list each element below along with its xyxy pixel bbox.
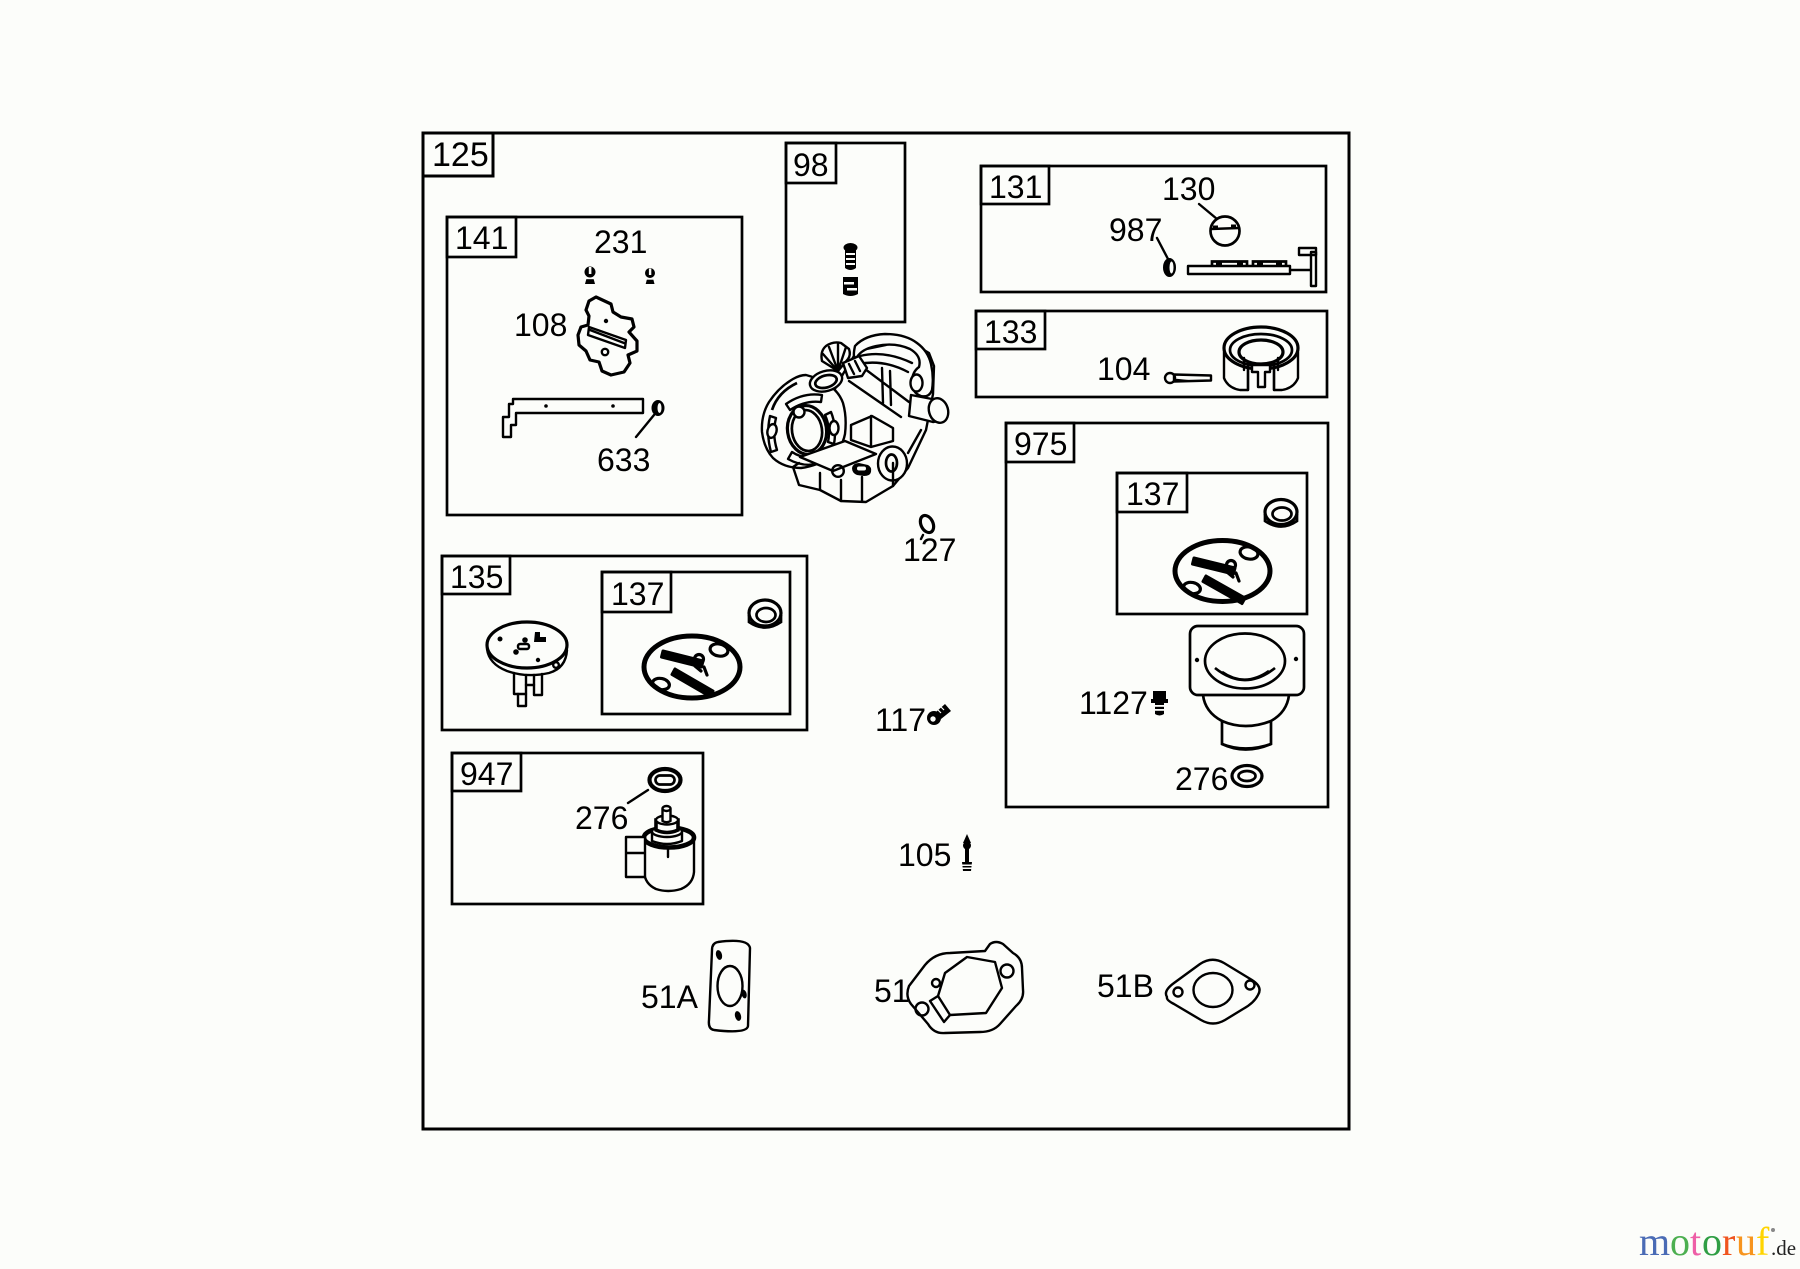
svg-text:m: m xyxy=(1639,1219,1670,1264)
svg-text:f: f xyxy=(1756,1219,1770,1264)
svg-text:130: 130 xyxy=(1162,171,1215,207)
svg-text:r: r xyxy=(1722,1219,1735,1264)
svg-text:117: 117 xyxy=(875,702,926,738)
svg-text:141: 141 xyxy=(455,220,508,256)
svg-text:98: 98 xyxy=(793,147,829,183)
svg-text:947: 947 xyxy=(460,756,513,792)
svg-text:135: 135 xyxy=(450,559,503,595)
svg-text:o: o xyxy=(1702,1219,1722,1264)
svg-text:633: 633 xyxy=(597,442,650,478)
svg-text:276: 276 xyxy=(1175,761,1228,797)
svg-text:127: 127 xyxy=(903,532,956,568)
svg-text:104: 104 xyxy=(1097,351,1150,387)
svg-text:975: 975 xyxy=(1014,426,1067,462)
svg-text:276: 276 xyxy=(575,800,628,836)
svg-text:131: 131 xyxy=(989,169,1042,205)
svg-text:133: 133 xyxy=(984,314,1037,350)
svg-text:1127: 1127 xyxy=(1079,685,1148,721)
svg-text:.de: .de xyxy=(1771,1236,1796,1260)
svg-text:o: o xyxy=(1670,1219,1690,1264)
svg-text:51B: 51B xyxy=(1097,968,1154,1004)
svg-text:987: 987 xyxy=(1109,212,1162,248)
svg-text:51: 51 xyxy=(874,973,910,1009)
svg-text:137: 137 xyxy=(611,576,664,612)
svg-text:231: 231 xyxy=(594,224,647,260)
svg-text:137: 137 xyxy=(1126,476,1179,512)
svg-text:u: u xyxy=(1736,1219,1756,1264)
svg-text:108: 108 xyxy=(514,307,567,343)
svg-text:t: t xyxy=(1690,1219,1701,1264)
svg-text:105: 105 xyxy=(898,837,951,873)
svg-text:51A: 51A xyxy=(641,979,699,1015)
svg-text:125: 125 xyxy=(432,136,489,174)
